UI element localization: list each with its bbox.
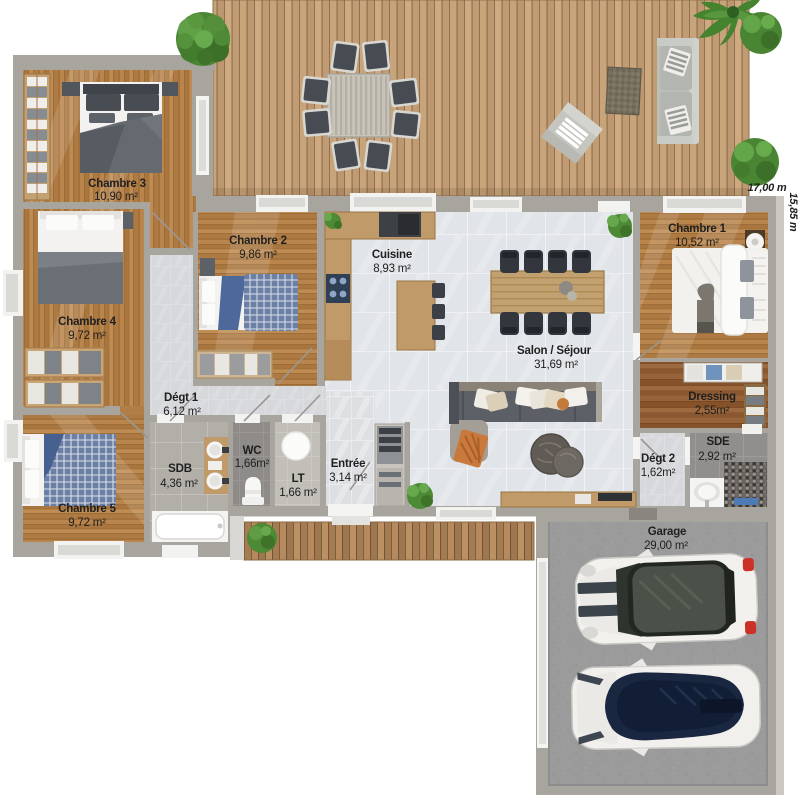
svg-text:8,93 m²: 8,93 m²	[373, 263, 411, 275]
svg-text:WC: WC	[243, 445, 262, 457]
svg-text:Cuisine: Cuisine	[372, 249, 412, 261]
svg-text:Garage: Garage	[648, 526, 686, 538]
svg-text:29,00 m²: 29,00 m²	[644, 540, 688, 552]
svg-text:Salon / Séjour: Salon / Séjour	[517, 345, 592, 357]
svg-text:SDE: SDE	[706, 436, 730, 448]
svg-text:9,72 m²: 9,72 m²	[68, 517, 106, 529]
svg-text:2,92 m²: 2,92 m²	[698, 451, 736, 463]
svg-text:Dégt 2: Dégt 2	[641, 453, 675, 465]
svg-text:2,55m²: 2,55m²	[695, 405, 730, 417]
svg-text:Dégt 1: Dégt 1	[164, 392, 199, 404]
svg-text:Dressing: Dressing	[688, 391, 736, 403]
svg-text:Chambre 5: Chambre 5	[58, 503, 116, 515]
svg-text:31,69 m²: 31,69 m²	[534, 359, 578, 371]
svg-text:1,62m²: 1,62m²	[641, 467, 676, 479]
svg-text:9,72 m²: 9,72 m²	[68, 330, 106, 342]
svg-text:1,66 m²: 1,66 m²	[279, 487, 317, 499]
svg-text:17,00 m: 17,00 m	[748, 182, 787, 194]
svg-text:10,90 m²: 10,90 m²	[94, 191, 138, 203]
svg-text:3,14 m²: 3,14 m²	[329, 472, 367, 484]
svg-text:6,12 m²: 6,12 m²	[163, 406, 201, 418]
svg-text:Entrée: Entrée	[331, 458, 366, 470]
svg-text:Chambre 2: Chambre 2	[229, 235, 287, 247]
svg-text:1,66m²: 1,66m²	[235, 458, 270, 470]
svg-text:4,36 m²: 4,36 m²	[160, 478, 198, 490]
svg-text:Chambre 4: Chambre 4	[58, 316, 116, 328]
svg-text:Chambre 3: Chambre 3	[88, 178, 146, 190]
svg-text:SDB: SDB	[168, 463, 192, 475]
svg-text:9,86 m²: 9,86 m²	[239, 249, 277, 261]
svg-text:Chambre 1: Chambre 1	[668, 223, 726, 235]
svg-text:10,52 m²: 10,52 m²	[675, 237, 719, 249]
svg-text:15,85 m: 15,85 m	[787, 193, 799, 232]
svg-text:LT: LT	[292, 473, 305, 485]
